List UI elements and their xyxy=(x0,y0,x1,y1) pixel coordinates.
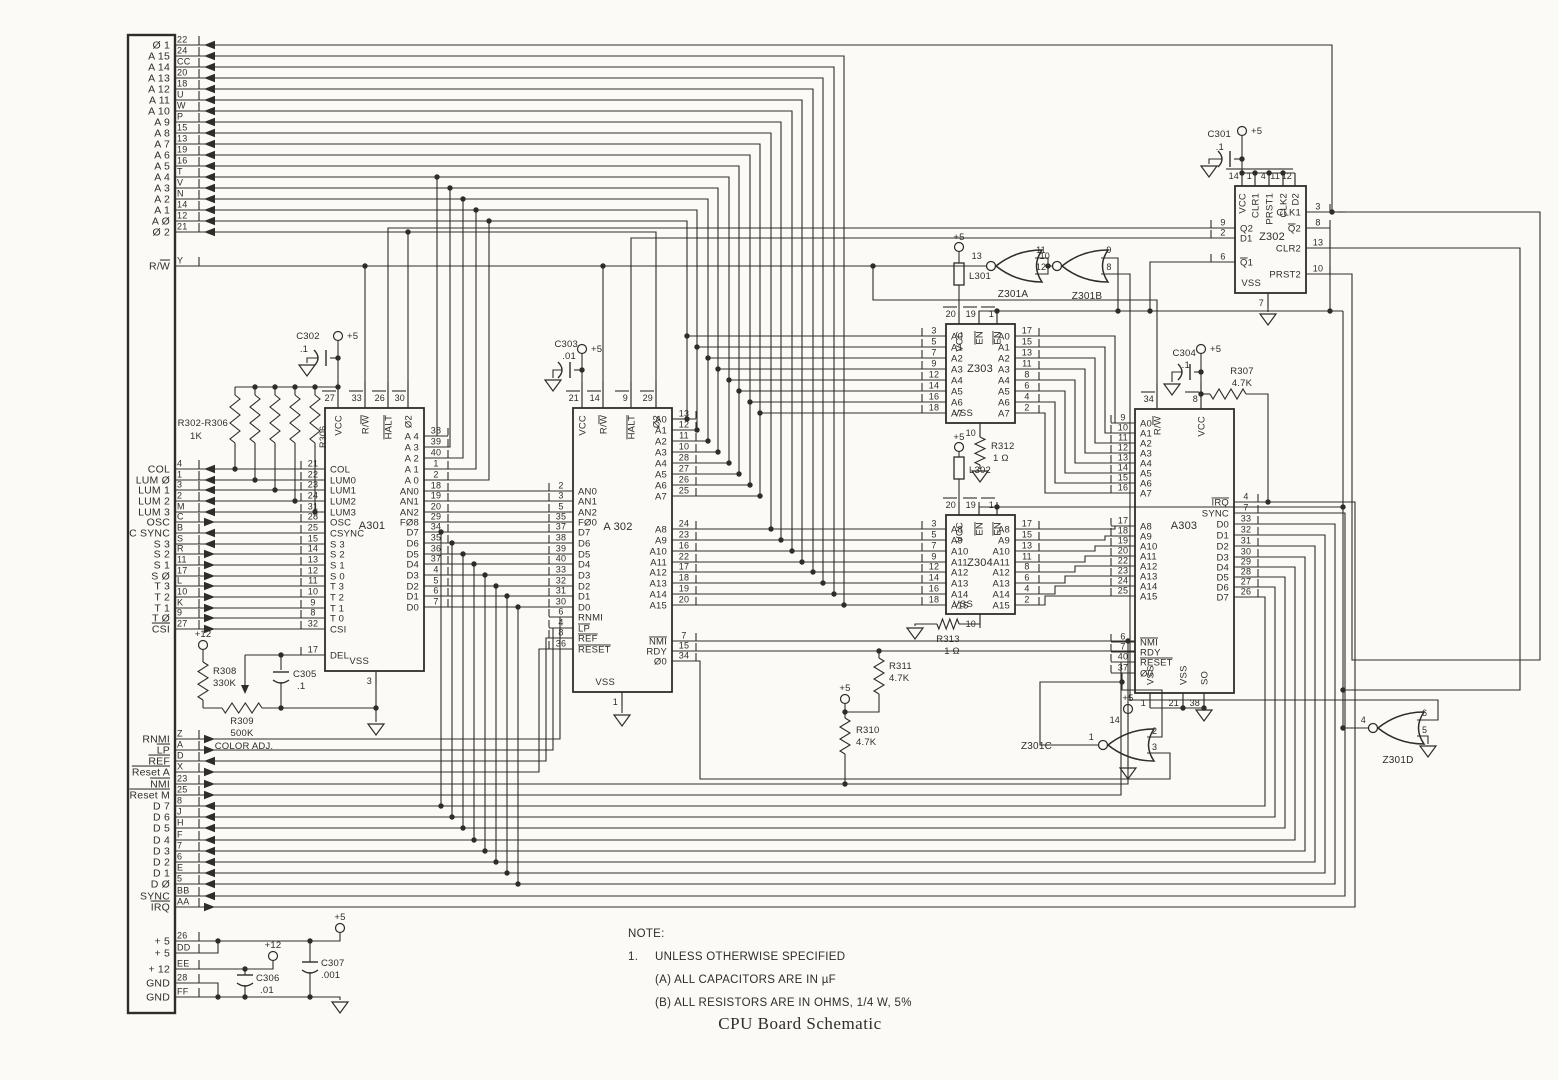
svg-text:1: 1 xyxy=(1247,171,1252,181)
svg-text:D 5: D 5 xyxy=(153,823,170,835)
svg-text:D4: D4 xyxy=(406,560,419,571)
svg-text:21: 21 xyxy=(308,459,318,469)
svg-text:6: 6 xyxy=(558,607,563,617)
svg-text:A12: A12 xyxy=(649,568,667,579)
svg-text:VSS: VSS xyxy=(349,656,369,667)
svg-text:22: 22 xyxy=(1118,556,1128,566)
svg-text:A2: A2 xyxy=(655,437,667,448)
svg-text:4: 4 xyxy=(1024,392,1029,402)
svg-text:U: U xyxy=(177,90,184,100)
note-line-3: (B) ALL RESISTORS ARE IN OHMS, 1/4 W, 5% xyxy=(655,997,912,1009)
svg-text:A4: A4 xyxy=(655,459,667,470)
svg-text:27: 27 xyxy=(325,393,335,403)
svg-text:AA: AA xyxy=(177,897,189,907)
svg-text:R312: R312 xyxy=(991,441,1015,452)
svg-text:A8: A8 xyxy=(951,525,963,536)
svg-text:33: 33 xyxy=(1241,514,1251,524)
svg-text:9: 9 xyxy=(310,598,315,608)
svg-text:12: 12 xyxy=(929,562,939,572)
svg-text:Z304: Z304 xyxy=(967,557,993,569)
svg-text:4.7K: 4.7K xyxy=(856,737,877,748)
svg-text:8: 8 xyxy=(558,628,563,638)
svg-text:5: 5 xyxy=(1422,725,1427,735)
svg-text:22: 22 xyxy=(679,552,689,562)
svg-text:6: 6 xyxy=(433,586,438,596)
chip-z303: Z30320VCC19EN1EN3A05A17A29A312A414A516A6… xyxy=(922,307,1039,438)
svg-text:330K: 330K xyxy=(213,678,236,689)
svg-text:4: 4 xyxy=(1361,715,1366,725)
svg-text:A5: A5 xyxy=(998,387,1010,398)
svg-text:FF: FF xyxy=(177,987,189,997)
svg-text:500K: 500K xyxy=(231,728,254,739)
svg-text:7: 7 xyxy=(1120,642,1125,652)
svg-text:R310: R310 xyxy=(856,725,880,736)
svg-text:7: 7 xyxy=(1259,298,1264,308)
svg-text:12: 12 xyxy=(1036,262,1046,272)
svg-text:18: 18 xyxy=(431,481,441,491)
svg-text:D7: D7 xyxy=(406,528,419,539)
svg-text:VCC: VCC xyxy=(1197,416,1208,437)
svg-text:8: 8 xyxy=(310,608,315,618)
svg-text:17: 17 xyxy=(308,645,318,655)
svg-text:R/W: R/W xyxy=(149,261,170,273)
svg-text:14: 14 xyxy=(1110,715,1120,725)
svg-text:VSS: VSS xyxy=(595,677,615,688)
svg-text:A: A xyxy=(177,740,183,750)
svg-text:4: 4 xyxy=(558,618,563,628)
svg-text:A13: A13 xyxy=(649,579,667,590)
svg-text:A 302: A 302 xyxy=(603,521,632,533)
svg-text:9: 9 xyxy=(1220,218,1225,228)
svg-text:17: 17 xyxy=(177,566,187,576)
svg-text:A14: A14 xyxy=(649,590,667,601)
svg-text:11: 11 xyxy=(1270,171,1280,181)
svg-text:36: 36 xyxy=(556,639,566,649)
svg-text:CC: CC xyxy=(177,57,191,67)
svg-text:AN1: AN1 xyxy=(400,497,419,508)
svg-text:R308: R308 xyxy=(213,666,237,677)
svg-text:A12: A12 xyxy=(951,568,969,579)
svg-text:9: 9 xyxy=(931,359,936,369)
svg-text:13: 13 xyxy=(972,251,982,261)
svg-text:C307: C307 xyxy=(321,958,345,969)
svg-text:19: 19 xyxy=(679,584,689,594)
svg-text:20: 20 xyxy=(177,68,187,78)
edge-connector: Ø 122A 1524A 14CCA 1320A 1218A 11UA 10WA… xyxy=(128,35,215,1014)
svg-text:R302-R306: R302-R306 xyxy=(178,418,228,429)
svg-text:LUM1: LUM1 xyxy=(330,486,356,497)
svg-text:35: 35 xyxy=(431,533,441,543)
svg-text:25: 25 xyxy=(177,785,187,795)
svg-text:VSS: VSS xyxy=(1179,665,1190,685)
svg-text:+5: +5 xyxy=(591,344,602,355)
svg-text:Z301A: Z301A xyxy=(998,289,1029,300)
svg-text:A2: A2 xyxy=(951,354,963,365)
svg-text:15: 15 xyxy=(1022,530,1032,540)
svg-text:A4: A4 xyxy=(998,376,1010,387)
svg-text:20: 20 xyxy=(946,500,956,510)
svg-text:A8: A8 xyxy=(998,525,1010,536)
svg-text:1: 1 xyxy=(989,500,994,510)
svg-text:A0: A0 xyxy=(998,332,1010,343)
svg-text:20: 20 xyxy=(679,595,689,605)
svg-text:CLR1: CLR1 xyxy=(1251,193,1262,218)
svg-text:L301: L301 xyxy=(969,271,991,282)
svg-text:8: 8 xyxy=(1193,394,1198,404)
svg-text:12: 12 xyxy=(1282,171,1292,181)
svg-text:24: 24 xyxy=(1118,576,1128,586)
svg-text:T 3: T 3 xyxy=(330,582,344,593)
svg-text:D1: D1 xyxy=(406,592,419,603)
svg-text:29: 29 xyxy=(1241,557,1251,567)
svg-text:Q1: Q1 xyxy=(1240,258,1253,269)
svg-text:D1: D1 xyxy=(578,592,591,603)
svg-text:Z301D: Z301D xyxy=(1382,755,1413,766)
svg-text:32: 32 xyxy=(308,619,318,629)
svg-text:X: X xyxy=(177,762,183,772)
svg-text:17: 17 xyxy=(1022,326,1032,336)
svg-text:R: R xyxy=(177,544,184,554)
svg-text:7: 7 xyxy=(433,597,438,607)
svg-text:39: 39 xyxy=(431,437,441,447)
svg-text:14: 14 xyxy=(308,544,318,554)
svg-text:A 4: A 4 xyxy=(405,432,419,443)
svg-text:A 0: A 0 xyxy=(405,476,419,487)
svg-text:4: 4 xyxy=(1243,492,1248,502)
svg-text:9: 9 xyxy=(623,393,628,403)
svg-text:21: 21 xyxy=(177,222,187,232)
svg-text:40: 40 xyxy=(556,554,566,564)
svg-text:15: 15 xyxy=(177,123,187,133)
svg-text:Ø2: Ø2 xyxy=(404,415,415,428)
svg-text:3: 3 xyxy=(367,676,372,686)
svg-text:5: 5 xyxy=(931,530,936,540)
svg-text:23: 23 xyxy=(308,480,318,490)
svg-text:OSC: OSC xyxy=(330,518,351,529)
svg-text:IRQ: IRQ xyxy=(1212,498,1230,509)
svg-text:12: 12 xyxy=(308,566,318,576)
svg-text:28: 28 xyxy=(308,512,318,522)
svg-text:A14: A14 xyxy=(992,590,1010,601)
svg-text:T 2: T 2 xyxy=(330,593,344,604)
chip-z304: Z30420VCC19EN1EN3A85A97A109A1112A1214A13… xyxy=(922,498,1039,629)
svg-text:A10: A10 xyxy=(951,547,969,558)
svg-text:R/W: R/W xyxy=(1153,416,1164,435)
svg-text:GND: GND xyxy=(146,978,170,990)
svg-text:D: D xyxy=(177,751,184,761)
svg-text:A0: A0 xyxy=(655,415,667,426)
note-heading: NOTE: xyxy=(628,928,912,940)
svg-text:1 Ω: 1 Ω xyxy=(993,453,1009,464)
svg-text:14: 14 xyxy=(929,381,939,391)
svg-text:D6: D6 xyxy=(578,539,591,550)
svg-text:+5: +5 xyxy=(334,912,345,923)
svg-text:.1: .1 xyxy=(1216,142,1224,153)
svg-text:15: 15 xyxy=(308,534,318,544)
svg-text:24: 24 xyxy=(308,491,318,501)
svg-text:IRQ: IRQ xyxy=(151,902,170,914)
svg-text:HALT: HALT xyxy=(627,415,638,439)
svg-text:9: 9 xyxy=(931,552,936,562)
svg-text:17: 17 xyxy=(679,562,689,572)
svg-text:32: 32 xyxy=(556,576,566,586)
svg-text:23: 23 xyxy=(177,774,187,784)
svg-text:L302: L302 xyxy=(969,465,991,476)
svg-text:27: 27 xyxy=(679,464,689,474)
svg-text:5: 5 xyxy=(558,502,563,512)
svg-text:VCC: VCC xyxy=(578,415,589,436)
svg-text:VSS: VSS xyxy=(953,599,973,610)
svg-text:37: 37 xyxy=(431,554,441,564)
svg-text:D2: D2 xyxy=(1291,193,1302,206)
svg-text:11: 11 xyxy=(679,431,689,441)
svg-text:10: 10 xyxy=(679,442,689,452)
svg-text:+5: +5 xyxy=(1122,693,1133,704)
svg-text:Ø 2: Ø 2 xyxy=(152,227,170,239)
svg-text:A10: A10 xyxy=(992,547,1010,558)
svg-text:W: W xyxy=(177,101,186,111)
schematic-page: Ø 122A 1524A 14CCA 1320A 1218A 11UA 10WA… xyxy=(0,0,1558,1080)
svg-text:3: 3 xyxy=(177,480,182,490)
svg-text:C: C xyxy=(177,512,184,522)
svg-text:15: 15 xyxy=(1118,473,1128,483)
svg-text:11: 11 xyxy=(308,576,318,586)
svg-text:+ 5: + 5 xyxy=(155,948,171,960)
svg-text:BB: BB xyxy=(177,886,189,896)
svg-text:4: 4 xyxy=(177,459,182,469)
svg-text:33: 33 xyxy=(556,565,566,575)
svg-text:VSS: VSS xyxy=(953,408,973,419)
svg-text:29: 29 xyxy=(643,393,653,403)
svg-text:34: 34 xyxy=(431,522,441,532)
svg-text:18: 18 xyxy=(929,403,939,413)
svg-text:10: 10 xyxy=(1313,264,1323,274)
svg-text:S 2: S 2 xyxy=(330,550,345,561)
svg-text:16: 16 xyxy=(177,156,187,166)
svg-text:D0: D0 xyxy=(406,603,419,614)
svg-text:28: 28 xyxy=(1241,567,1251,577)
svg-text:A10: A10 xyxy=(649,547,667,558)
svg-text:A7: A7 xyxy=(655,492,667,503)
svg-text:26: 26 xyxy=(679,475,689,485)
svg-text:14: 14 xyxy=(1229,171,1239,181)
svg-text:VCC: VCC xyxy=(334,415,345,436)
svg-text:+5: +5 xyxy=(839,683,850,694)
svg-text:31: 31 xyxy=(556,586,566,596)
svg-text:DEL: DEL xyxy=(330,651,349,662)
svg-text:6: 6 xyxy=(1024,381,1029,391)
svg-text:A15: A15 xyxy=(992,601,1010,612)
svg-text:25: 25 xyxy=(1118,586,1128,596)
svg-text:A 2: A 2 xyxy=(405,454,419,465)
svg-text:C302: C302 xyxy=(296,331,320,342)
svg-text:CSYNC: CSYNC xyxy=(330,529,364,540)
chip-a303: A30334R/W8VCC9A010A111A212A313A414A515A6… xyxy=(1111,383,1258,708)
svg-text:31: 31 xyxy=(1241,536,1251,546)
svg-text:D4: D4 xyxy=(578,560,591,571)
svg-text:VSS: VSS xyxy=(1146,665,1157,685)
svg-text:R/W: R/W xyxy=(599,415,610,434)
svg-text:13: 13 xyxy=(177,134,187,144)
svg-text:+ 5: + 5 xyxy=(155,936,171,948)
svg-text:25: 25 xyxy=(679,486,689,496)
svg-text:D3: D3 xyxy=(406,571,419,582)
svg-text:23: 23 xyxy=(679,530,689,540)
svg-text:2: 2 xyxy=(1220,228,1225,238)
svg-text:20: 20 xyxy=(946,309,956,319)
svg-text:LUM2: LUM2 xyxy=(330,497,356,508)
svg-text:4: 4 xyxy=(1261,171,1266,181)
svg-text:V: V xyxy=(177,178,183,188)
svg-text:C304: C304 xyxy=(1172,348,1196,359)
svg-text:GND: GND xyxy=(146,992,170,1004)
svg-text:EN: EN xyxy=(975,522,986,536)
svg-text:14: 14 xyxy=(929,573,939,583)
svg-text:9: 9 xyxy=(177,608,182,618)
svg-text:PRST1: PRST1 xyxy=(1265,193,1276,225)
svg-text:30: 30 xyxy=(1241,547,1251,557)
svg-text:11: 11 xyxy=(177,555,187,565)
svg-text:AN1: AN1 xyxy=(578,497,597,508)
svg-text:21: 21 xyxy=(1169,698,1179,708)
svg-text:19: 19 xyxy=(966,309,976,319)
svg-text:38: 38 xyxy=(1190,698,1200,708)
svg-text:R313: R313 xyxy=(936,634,960,645)
svg-text:F: F xyxy=(177,830,183,840)
svg-text:3: 3 xyxy=(1152,742,1157,752)
svg-text:S: S xyxy=(177,534,183,544)
svg-text:24: 24 xyxy=(177,46,187,56)
svg-text:COLOR ADJ.: COLOR ADJ. xyxy=(215,741,274,752)
svg-text:D3: D3 xyxy=(578,571,591,582)
svg-text:K: K xyxy=(177,598,183,608)
svg-text:23: 23 xyxy=(1118,566,1128,576)
svg-text:1: 1 xyxy=(433,459,438,469)
svg-text:9: 9 xyxy=(1106,245,1111,255)
svg-text:31: 31 xyxy=(308,502,318,512)
svg-text:+5: +5 xyxy=(1210,344,1221,355)
svg-text:25: 25 xyxy=(308,523,318,533)
svg-text:12: 12 xyxy=(1118,443,1128,453)
svg-text:20: 20 xyxy=(1118,546,1128,556)
notes-block: NOTE: 1.UNLESS OTHERWISE SPECIFIED (A) A… xyxy=(628,928,912,1020)
svg-text:5: 5 xyxy=(931,337,936,347)
svg-text:1 Ω: 1 Ω xyxy=(944,646,960,657)
svg-text:EN: EN xyxy=(975,331,986,345)
svg-text:A6: A6 xyxy=(998,398,1010,409)
svg-text:A0: A0 xyxy=(951,332,963,343)
svg-text:28: 28 xyxy=(177,973,187,983)
svg-text:H: H xyxy=(177,818,184,828)
svg-text:A 3: A 3 xyxy=(405,443,419,454)
svg-text:A8: A8 xyxy=(655,525,667,536)
svg-text:Reset A: Reset A xyxy=(132,767,170,779)
svg-text:Y: Y xyxy=(177,256,183,266)
svg-text:1: 1 xyxy=(613,697,618,707)
svg-text:C305: C305 xyxy=(293,669,317,680)
svg-text:30: 30 xyxy=(395,393,405,403)
svg-text:37: 37 xyxy=(556,522,566,532)
svg-text:N: N xyxy=(177,189,184,199)
svg-text:.001: .001 xyxy=(321,970,340,981)
svg-text:A6: A6 xyxy=(951,398,963,409)
svg-text:20: 20 xyxy=(431,502,441,512)
svg-text:D2: D2 xyxy=(1216,542,1229,553)
svg-text:A6: A6 xyxy=(655,481,667,492)
svg-text:7: 7 xyxy=(931,541,936,551)
svg-text:32: 32 xyxy=(1241,525,1251,535)
svg-text:R/W: R/W xyxy=(361,415,372,434)
svg-text:18: 18 xyxy=(679,573,689,583)
chip-z302: Z30214VCC1CLR14PRST111CLK212D29Q22D16Q13… xyxy=(1211,169,1330,308)
svg-text:C301: C301 xyxy=(1207,129,1231,140)
svg-text:PRST2: PRST2 xyxy=(1269,270,1301,281)
svg-text:34: 34 xyxy=(1144,394,1154,404)
svg-text:1: 1 xyxy=(1089,732,1094,742)
svg-text:Z301C: Z301C xyxy=(1021,741,1052,752)
svg-text:+5: +5 xyxy=(1251,126,1262,137)
svg-text:38: 38 xyxy=(431,426,441,436)
svg-text:15: 15 xyxy=(1022,337,1032,347)
svg-text:2: 2 xyxy=(558,481,563,491)
svg-text:10: 10 xyxy=(966,428,976,438)
svg-text:L: L xyxy=(177,576,182,586)
svg-text:22: 22 xyxy=(177,35,187,45)
svg-text:37: 37 xyxy=(1118,663,1128,673)
svg-text:COL: COL xyxy=(330,465,350,476)
svg-text:A13: A13 xyxy=(992,579,1010,590)
svg-text:22: 22 xyxy=(308,470,318,480)
svg-text:13: 13 xyxy=(308,555,318,565)
svg-text:RNMI: RNMI xyxy=(578,613,603,624)
svg-text:SYNC: SYNC xyxy=(1202,509,1229,520)
svg-text:E: E xyxy=(177,863,183,873)
svg-text:10: 10 xyxy=(1118,423,1128,433)
svg-text:26: 26 xyxy=(177,931,187,941)
svg-text:6: 6 xyxy=(1024,573,1029,583)
note-line-2: (A) ALL CAPACITORS ARE IN µF xyxy=(655,974,912,986)
svg-text:2: 2 xyxy=(1152,726,1157,736)
svg-text:10: 10 xyxy=(966,619,976,629)
svg-text:33: 33 xyxy=(352,393,362,403)
svg-text:T 0: T 0 xyxy=(330,614,344,625)
svg-text:24: 24 xyxy=(679,519,689,529)
svg-text:A5: A5 xyxy=(655,470,667,481)
svg-text:3: 3 xyxy=(1315,202,1320,212)
svg-text:.1: .1 xyxy=(300,344,308,355)
svg-text:REF: REF xyxy=(578,634,598,645)
svg-text:8: 8 xyxy=(1024,562,1029,572)
svg-text:R311: R311 xyxy=(889,661,912,672)
svg-text:19: 19 xyxy=(177,145,187,155)
svg-text:16: 16 xyxy=(679,541,689,551)
svg-text:27: 27 xyxy=(1241,577,1251,587)
svg-text:A2: A2 xyxy=(998,354,1010,365)
svg-text:11: 11 xyxy=(1022,359,1032,369)
svg-text:13: 13 xyxy=(1022,348,1032,358)
svg-text:C303: C303 xyxy=(554,339,578,350)
svg-text:4: 4 xyxy=(1024,584,1029,594)
svg-text:18: 18 xyxy=(177,79,187,89)
svg-text:4.7K: 4.7K xyxy=(1232,378,1253,389)
svg-text:3: 3 xyxy=(558,491,563,501)
svg-text:6: 6 xyxy=(1120,632,1125,642)
svg-text:C306: C306 xyxy=(256,973,280,984)
svg-text:1K: 1K xyxy=(190,431,202,442)
svg-text:R307: R307 xyxy=(1230,366,1254,377)
svg-text:D7: D7 xyxy=(1216,593,1229,604)
svg-text:3: 3 xyxy=(931,519,936,529)
